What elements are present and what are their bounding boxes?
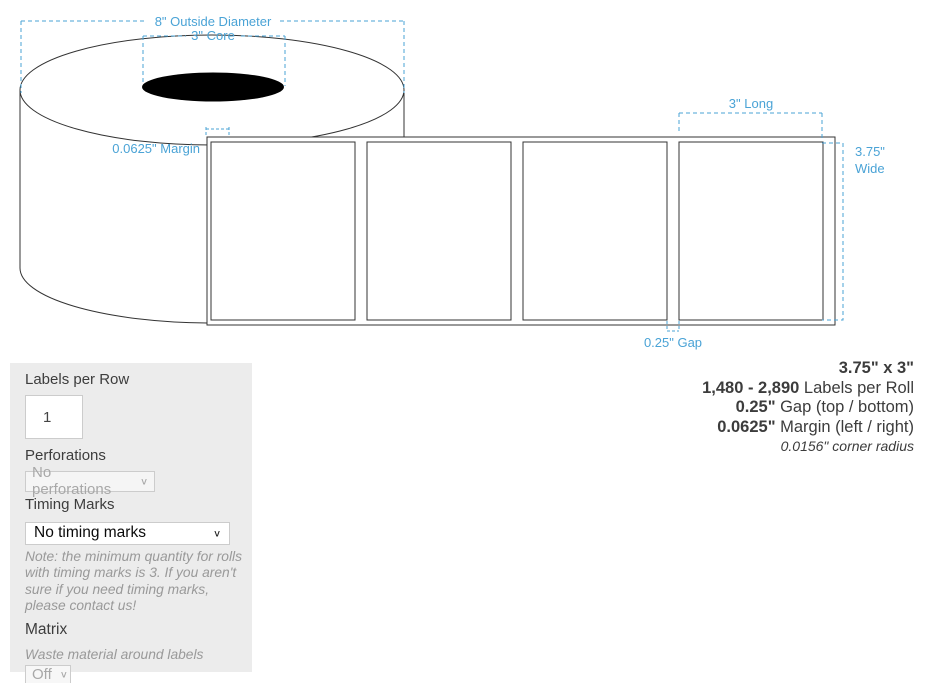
spec-gap: 0.25" Gap (top / bottom)	[702, 398, 914, 418]
spec-margin-value: 0.0625"	[717, 418, 775, 436]
matrix-selected-value: Off	[32, 666, 52, 683]
timing-marks-label: Timing Marks	[25, 496, 242, 513]
chevron-down-icon: ∨	[213, 527, 221, 538]
label-configurator: 8" Outside Diameter 3" Core 0.0625" Marg…	[0, 0, 928, 683]
chevron-down-icon: ∨	[60, 669, 68, 680]
core-label: 3" Core	[191, 28, 235, 43]
spec-gap-value: 0.25"	[736, 398, 776, 416]
spec-corner-radius: 0.0156" corner radius	[702, 437, 914, 457]
spec-margin: 0.0625" Margin (left / right)	[702, 418, 914, 438]
label-rect-3	[523, 142, 667, 320]
timing-marks-select[interactable]: No timing marks ∨	[25, 522, 230, 545]
wide-label-line1: 3.75"	[855, 144, 885, 159]
roll-core	[142, 73, 284, 102]
spec-summary: 3.75" x 3" 1,480 - 2,890 Labels per Roll…	[702, 359, 914, 457]
label-rect-2	[367, 142, 511, 320]
margin-label: 0.0625" Margin	[112, 141, 200, 156]
label-rect-4	[679, 142, 823, 320]
spec-labels-per-roll-value: 1,480 - 2,890	[702, 379, 799, 397]
timing-marks-selected-value: No timing marks	[34, 524, 146, 542]
spec-margin-text: Margin (left / right)	[776, 418, 914, 436]
matrix-label: Matrix	[25, 621, 242, 639]
spec-size: 3.75" x 3"	[702, 359, 914, 379]
matrix-select[interactable]: Off ∨	[25, 665, 71, 683]
spec-size-value: 3.75" x 3"	[839, 359, 914, 377]
wide-label-line2: Wide	[855, 161, 885, 176]
perforations-selected-value: No perforations	[32, 464, 132, 498]
outside-diameter-label: 8" Outside Diameter	[155, 14, 272, 29]
options-panel: Labels per Row Perforations No perforati…	[10, 363, 252, 672]
chevron-down-icon: ∨	[140, 475, 148, 486]
perforations-label: Perforations	[25, 447, 242, 464]
spec-labels-per-roll-text: Labels per Roll	[799, 379, 914, 397]
spec-gap-text: Gap (top / bottom)	[776, 398, 914, 416]
gap-label: 0.25" Gap	[644, 335, 702, 350]
timing-marks-note: Note: the minimum quantity for rolls wit…	[25, 549, 247, 615]
roll-diagram: 8" Outside Diameter 3" Core 0.0625" Marg…	[0, 0, 928, 356]
labels-per-row-input[interactable]	[25, 395, 83, 439]
perforations-select[interactable]: No perforations ∨	[25, 471, 155, 492]
long-label: 3" Long	[729, 96, 773, 111]
label-rect-1	[211, 142, 355, 320]
labels-per-row-label: Labels per Row	[25, 371, 242, 388]
matrix-description: Waste material around labels	[25, 647, 242, 662]
spec-labels-per-roll: 1,480 - 2,890 Labels per Roll	[702, 379, 914, 399]
